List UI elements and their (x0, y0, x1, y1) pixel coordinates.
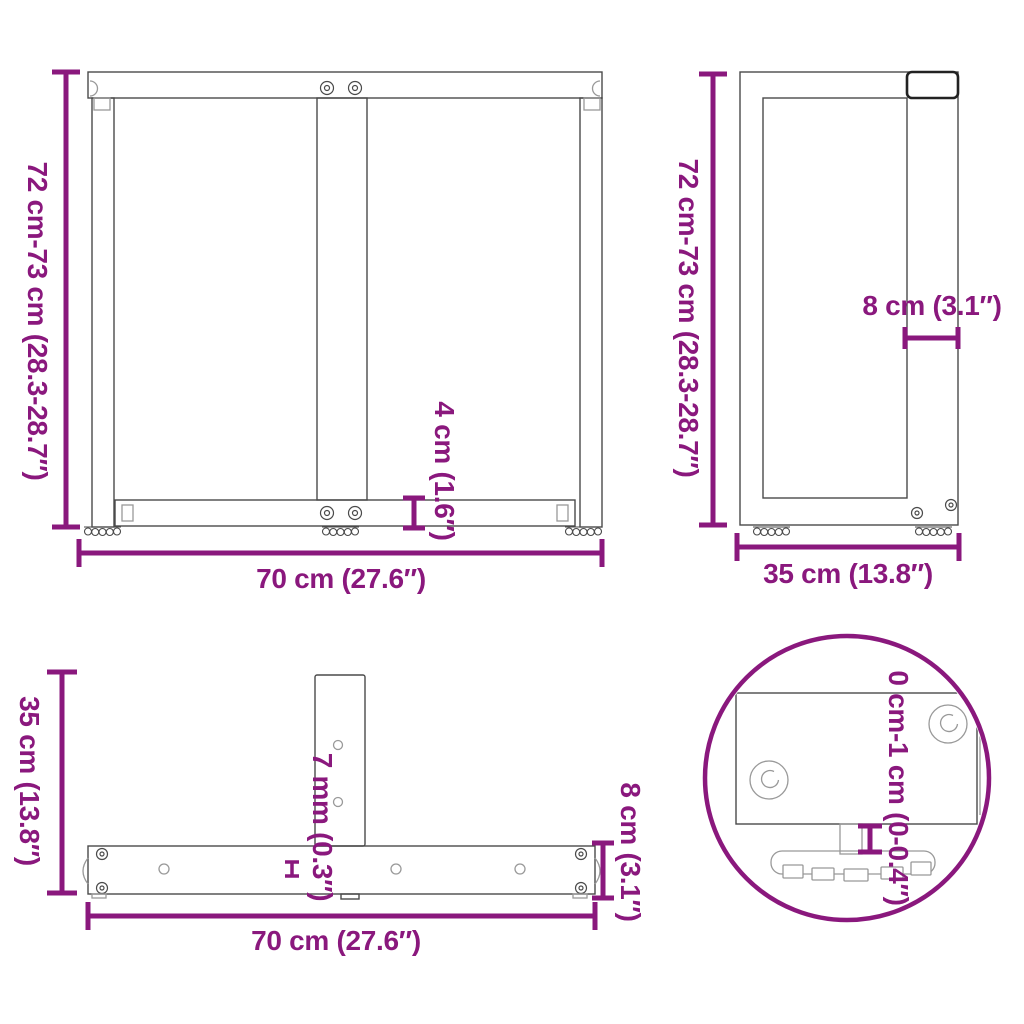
side-depth-label: 35 cm (13.8″) (763, 560, 933, 588)
side-leg-width-dimension-line (905, 327, 958, 349)
side-depth-dimension-line (737, 533, 959, 561)
screw-icon (97, 849, 587, 894)
top-depth-label: 35 cm (13.8″) (15, 696, 43, 866)
foot-detail-drawing (705, 636, 989, 920)
plate-thickness-dimension-line (285, 862, 299, 876)
adjustable-foot-icon (84, 527, 602, 536)
dimension-diagram-canvas (0, 0, 1024, 1024)
top-depth-dimension-line (47, 672, 77, 893)
side-leg-width-label: 8 cm (3.1″) (862, 292, 1001, 320)
side-height-label: 72 cm-73 cm (28.3-28.7″) (674, 158, 702, 477)
top-leg-depth-label: 8 cm (3.1″) (616, 782, 644, 921)
front-height-label: 72 cm-73 cm (28.3-28.7″) (23, 161, 51, 480)
screw-icon (321, 82, 362, 520)
top-thickness-label: 7 mm (0.3″) (308, 753, 336, 902)
screw-icon (912, 500, 957, 519)
front-height-dimension-line (52, 72, 80, 527)
front-view-drawing (52, 72, 602, 567)
product-dimension-diagram: 72 cm-73 cm (28.3-28.7″) 70 cm (27.6″) 4… (0, 0, 1024, 1024)
adjustable-foot-icon (753, 527, 952, 536)
front-crossbar-dimension-line (403, 498, 425, 528)
front-crossbar-label: 4 cm (1.6″) (430, 401, 458, 540)
foot-adjust-label: 0 cm-1 cm (0-0.4″) (884, 670, 912, 905)
front-width-label: 70 cm (27.6″) (256, 565, 426, 593)
top-width-label: 70 cm (27.6″) (251, 927, 421, 955)
